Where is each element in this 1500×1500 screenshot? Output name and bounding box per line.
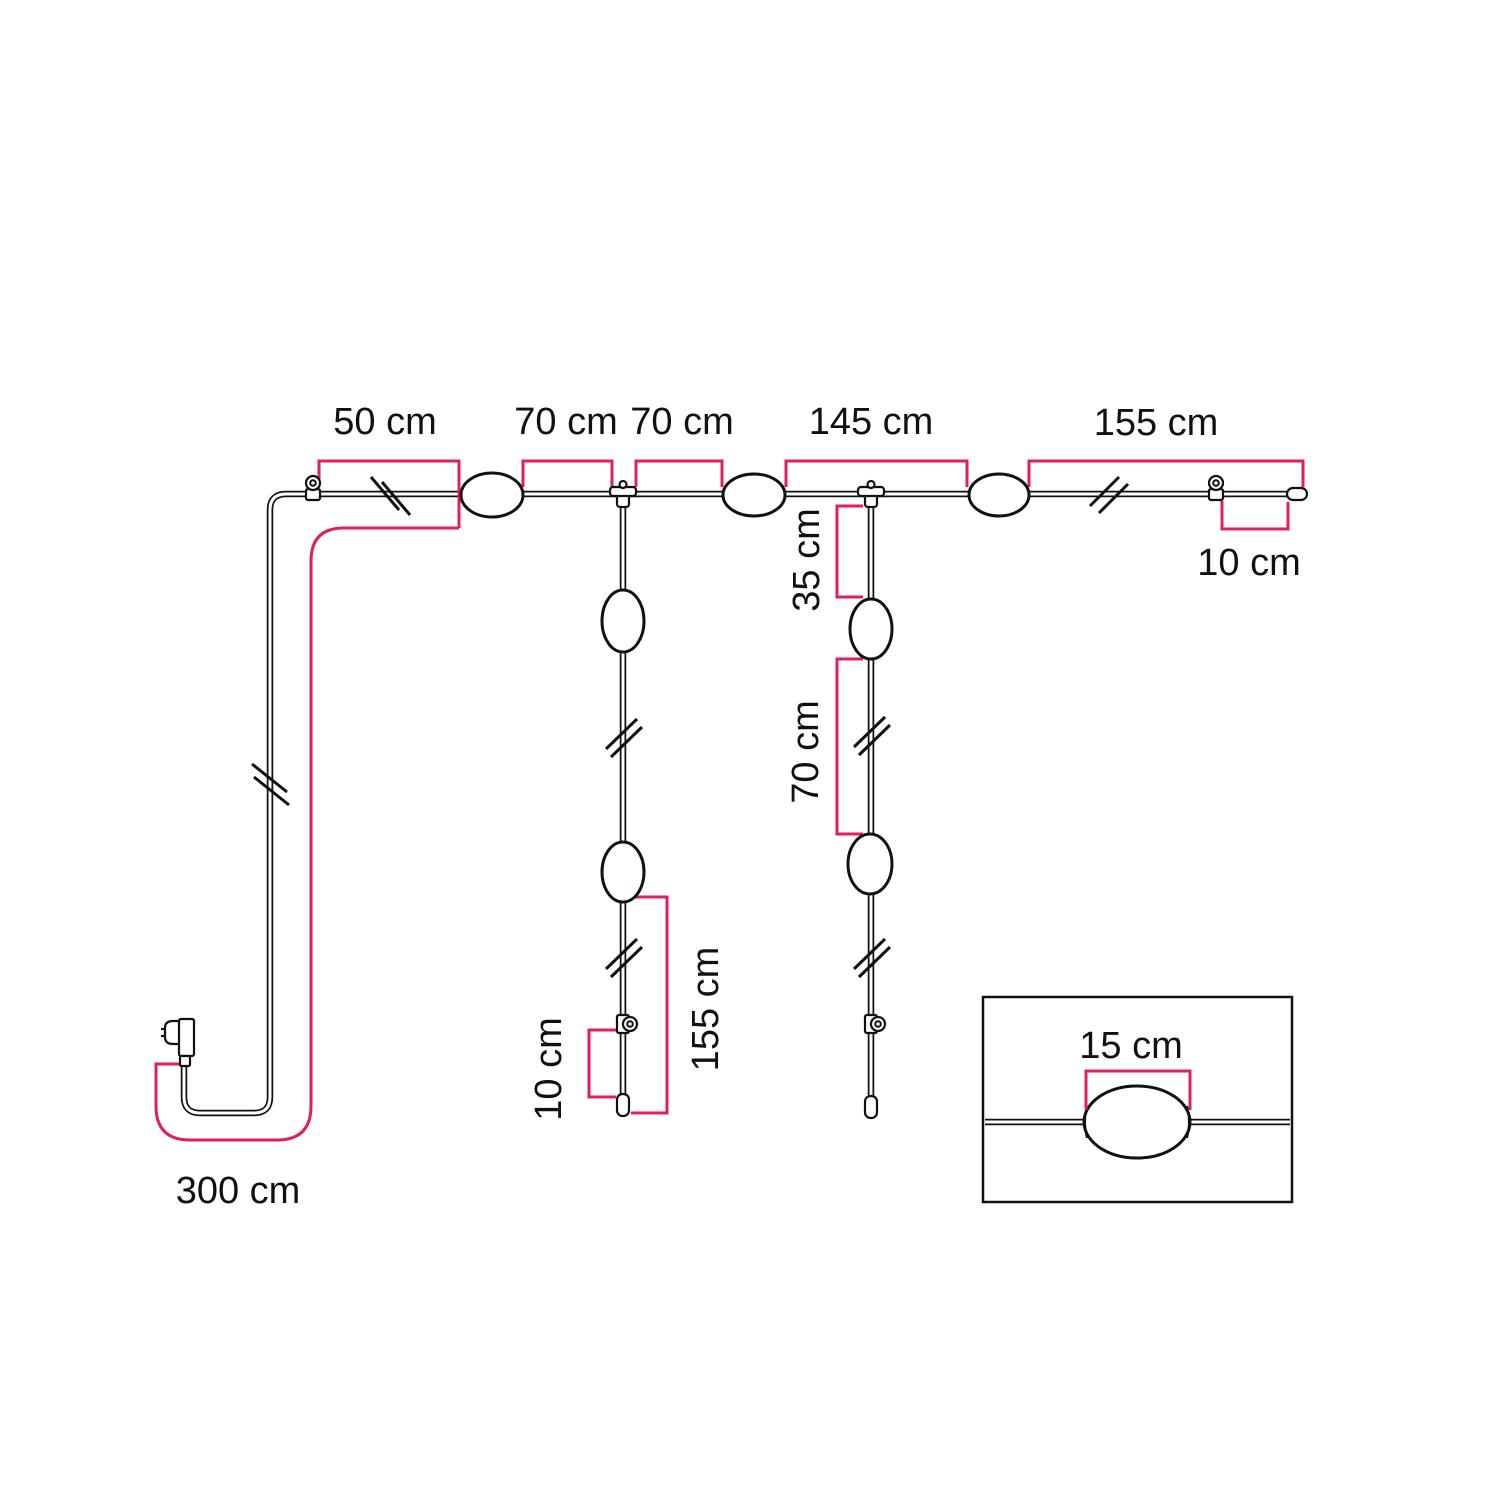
hook-eyelet-drop1 (617, 1015, 637, 1033)
lamp-drop2-upper (850, 599, 892, 659)
end-cap-drop2 (865, 1096, 877, 1118)
bracket-35cm-drop2 (837, 506, 863, 597)
dimension-diagram: 50 cm 70 cm 70 cm 145 cm 155 cm 10 cm 30… (0, 0, 1500, 1500)
plug-body (179, 1019, 194, 1056)
lamp-top-3 (969, 474, 1029, 516)
lamps (461, 473, 1029, 902)
dim-label-top-50cm: 50 cm (333, 403, 436, 441)
bracket-70cm-a (523, 461, 612, 487)
bracket-70cm-b (636, 461, 722, 487)
inset-lamp (1084, 1086, 1190, 1158)
hook-eyelet-top-right (1209, 476, 1223, 500)
dim-label-top-145cm: 145 cm (809, 403, 934, 441)
bracket-70cm-drop2 (837, 659, 863, 834)
lamp-top-2 (723, 474, 785, 516)
lamp-drop1-upper (602, 590, 644, 652)
hook-eyelet-top-left (306, 476, 320, 500)
end-cap-drop1 (617, 1094, 629, 1116)
lamp-top-1 (461, 473, 523, 517)
t-connector-nub (868, 481, 875, 488)
dim-label-inset-15cm: 15 cm (1079, 1027, 1182, 1065)
hook-eyelet-drop2 (865, 1015, 885, 1033)
t-connector-2 (858, 481, 884, 507)
dim-label-top-155cm: 155 cm (1094, 404, 1219, 442)
dim-label-drop2-35cm: 35 cm (788, 508, 826, 611)
lamp-drop1-lower (602, 842, 644, 902)
bracket-155cm-top (1029, 461, 1303, 487)
bracket-155cm-drop1 (631, 897, 667, 1113)
dim-label-top-70cm-a: 70 cm (514, 403, 617, 441)
dim-label-supply-cord-300cm: 300 cm (176, 1172, 301, 1210)
t-connector-1 (610, 481, 636, 507)
dim-label-top-70cm-b: 70 cm (630, 403, 733, 441)
diagram-artwork (0, 0, 1500, 1500)
lamp-drop2-lower (848, 834, 892, 894)
bracket-10cm-drop1 (589, 1030, 616, 1097)
bracket-145cm (786, 461, 967, 487)
t-connector-nub (620, 481, 627, 488)
bracket-10cm-right (1222, 501, 1288, 529)
power-plug (161, 1019, 194, 1066)
dim-label-right-10cm: 10 cm (1197, 544, 1300, 582)
dim-label-drop1-155cm: 155 cm (687, 947, 725, 1072)
dim-label-drop1-10cm: 10 cm (530, 1017, 568, 1120)
end-cap-top-right (1287, 488, 1307, 500)
dim-label-drop2-70cm: 70 cm (787, 700, 825, 803)
supply-cord-300cm-path (156, 528, 459, 1140)
plug-ferrule (180, 1056, 190, 1066)
